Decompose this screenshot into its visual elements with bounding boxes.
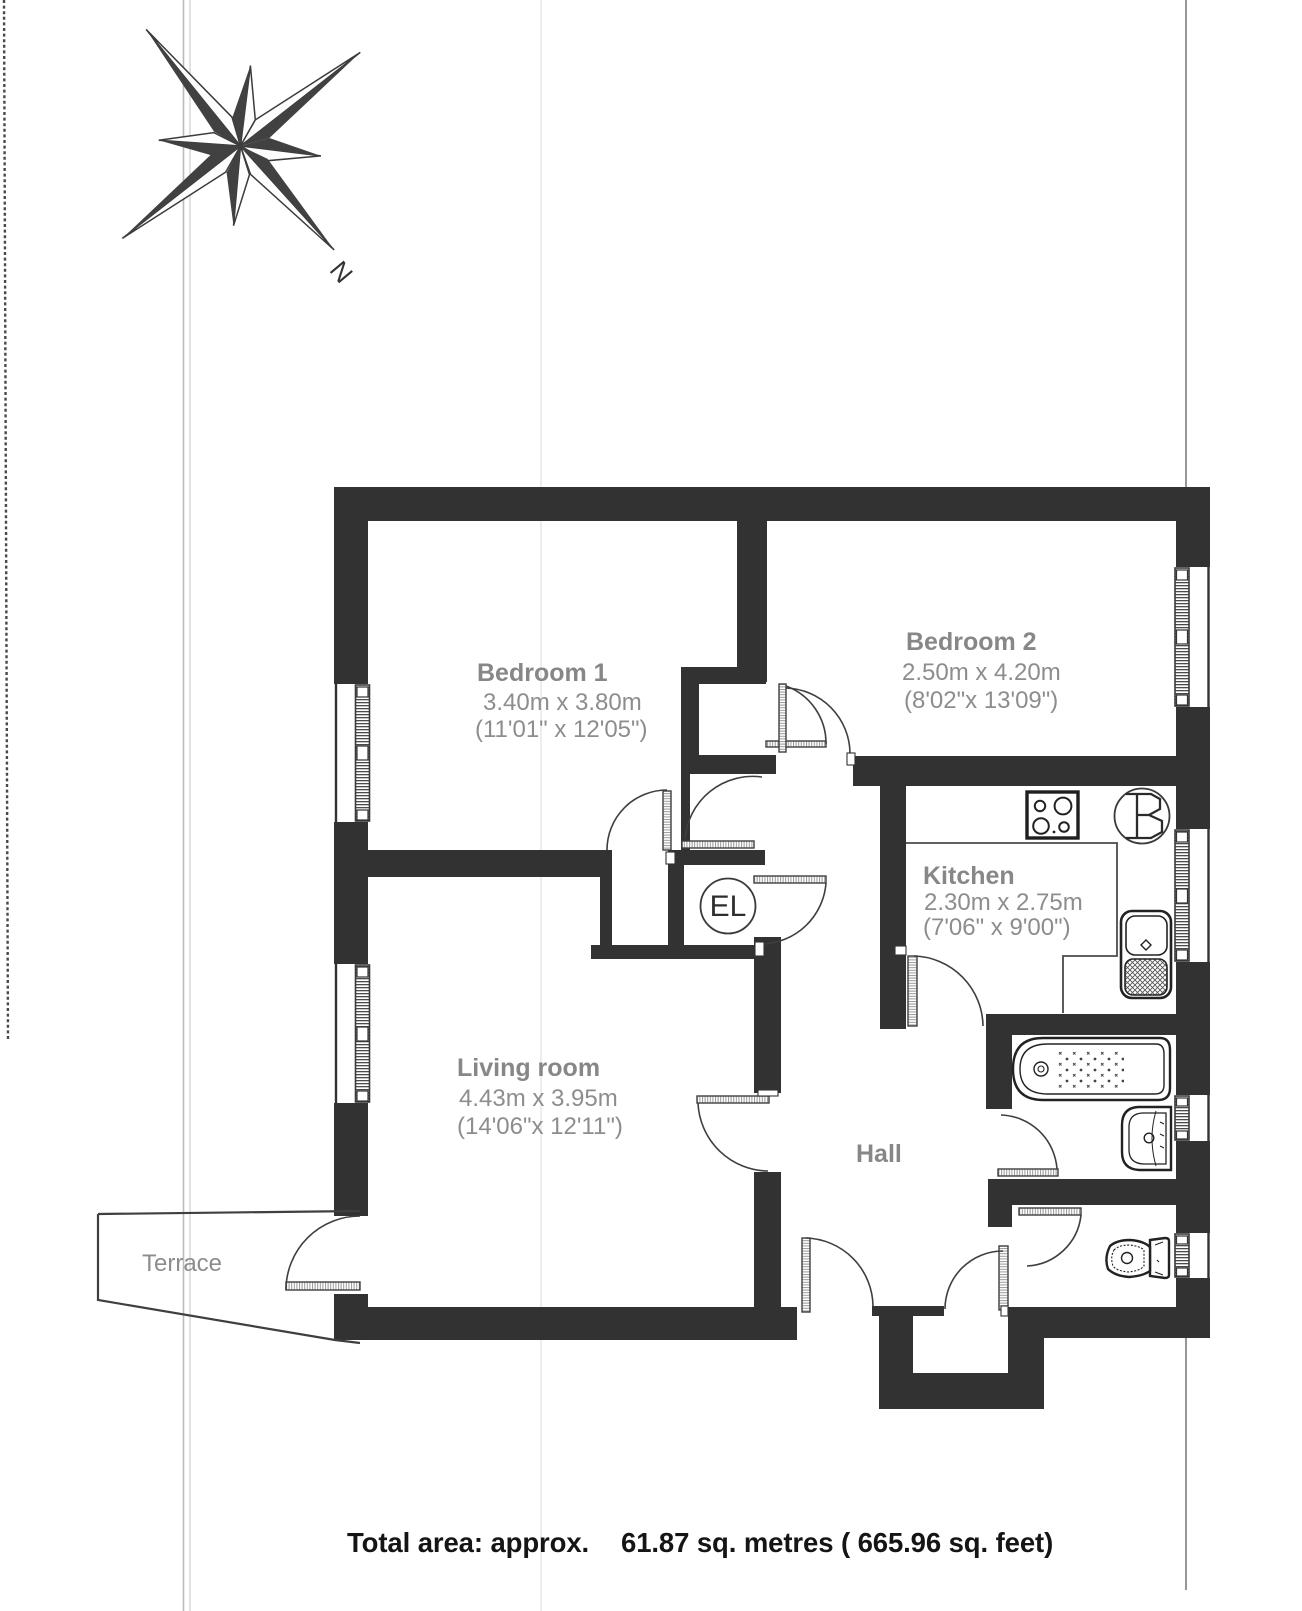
svg-text:Living room: Living room bbox=[457, 1054, 600, 1082]
svg-text:EL: EL bbox=[710, 890, 747, 923]
svg-text:2.30m x 2.75m: 2.30m x 2.75m bbox=[924, 889, 1083, 916]
svg-text:Terrace: Terrace bbox=[142, 1250, 222, 1277]
svg-text:Kitchen: Kitchen bbox=[923, 862, 1015, 890]
svg-text:Bedroom 1: Bedroom 1 bbox=[477, 659, 608, 687]
svg-text:(8'02"x 13'09"): (8'02"x 13'09") bbox=[904, 687, 1058, 714]
svg-text:3.40m x 3.80m: 3.40m x 3.80m bbox=[483, 689, 642, 716]
svg-text:(7'06" x 9'00"): (7'06" x 9'00") bbox=[923, 914, 1071, 941]
svg-text:Hall: Hall bbox=[856, 1140, 902, 1168]
svg-text:(11'01" x 12'05"): (11'01" x 12'05") bbox=[475, 716, 648, 743]
svg-text:Bedroom 2: Bedroom 2 bbox=[906, 628, 1037, 656]
svg-text:2.50m x 4.20m: 2.50m x 4.20m bbox=[902, 659, 1061, 686]
svg-text:4.43m x 3.95m: 4.43m x 3.95m bbox=[459, 1085, 618, 1112]
svg-text:Total area: approx.61.87 sq. m: Total area: approx.61.87 sq. metres ( 66… bbox=[347, 1527, 1053, 1558]
svg-text:(14'06"x 12'11"): (14'06"x 12'11") bbox=[457, 1113, 623, 1140]
